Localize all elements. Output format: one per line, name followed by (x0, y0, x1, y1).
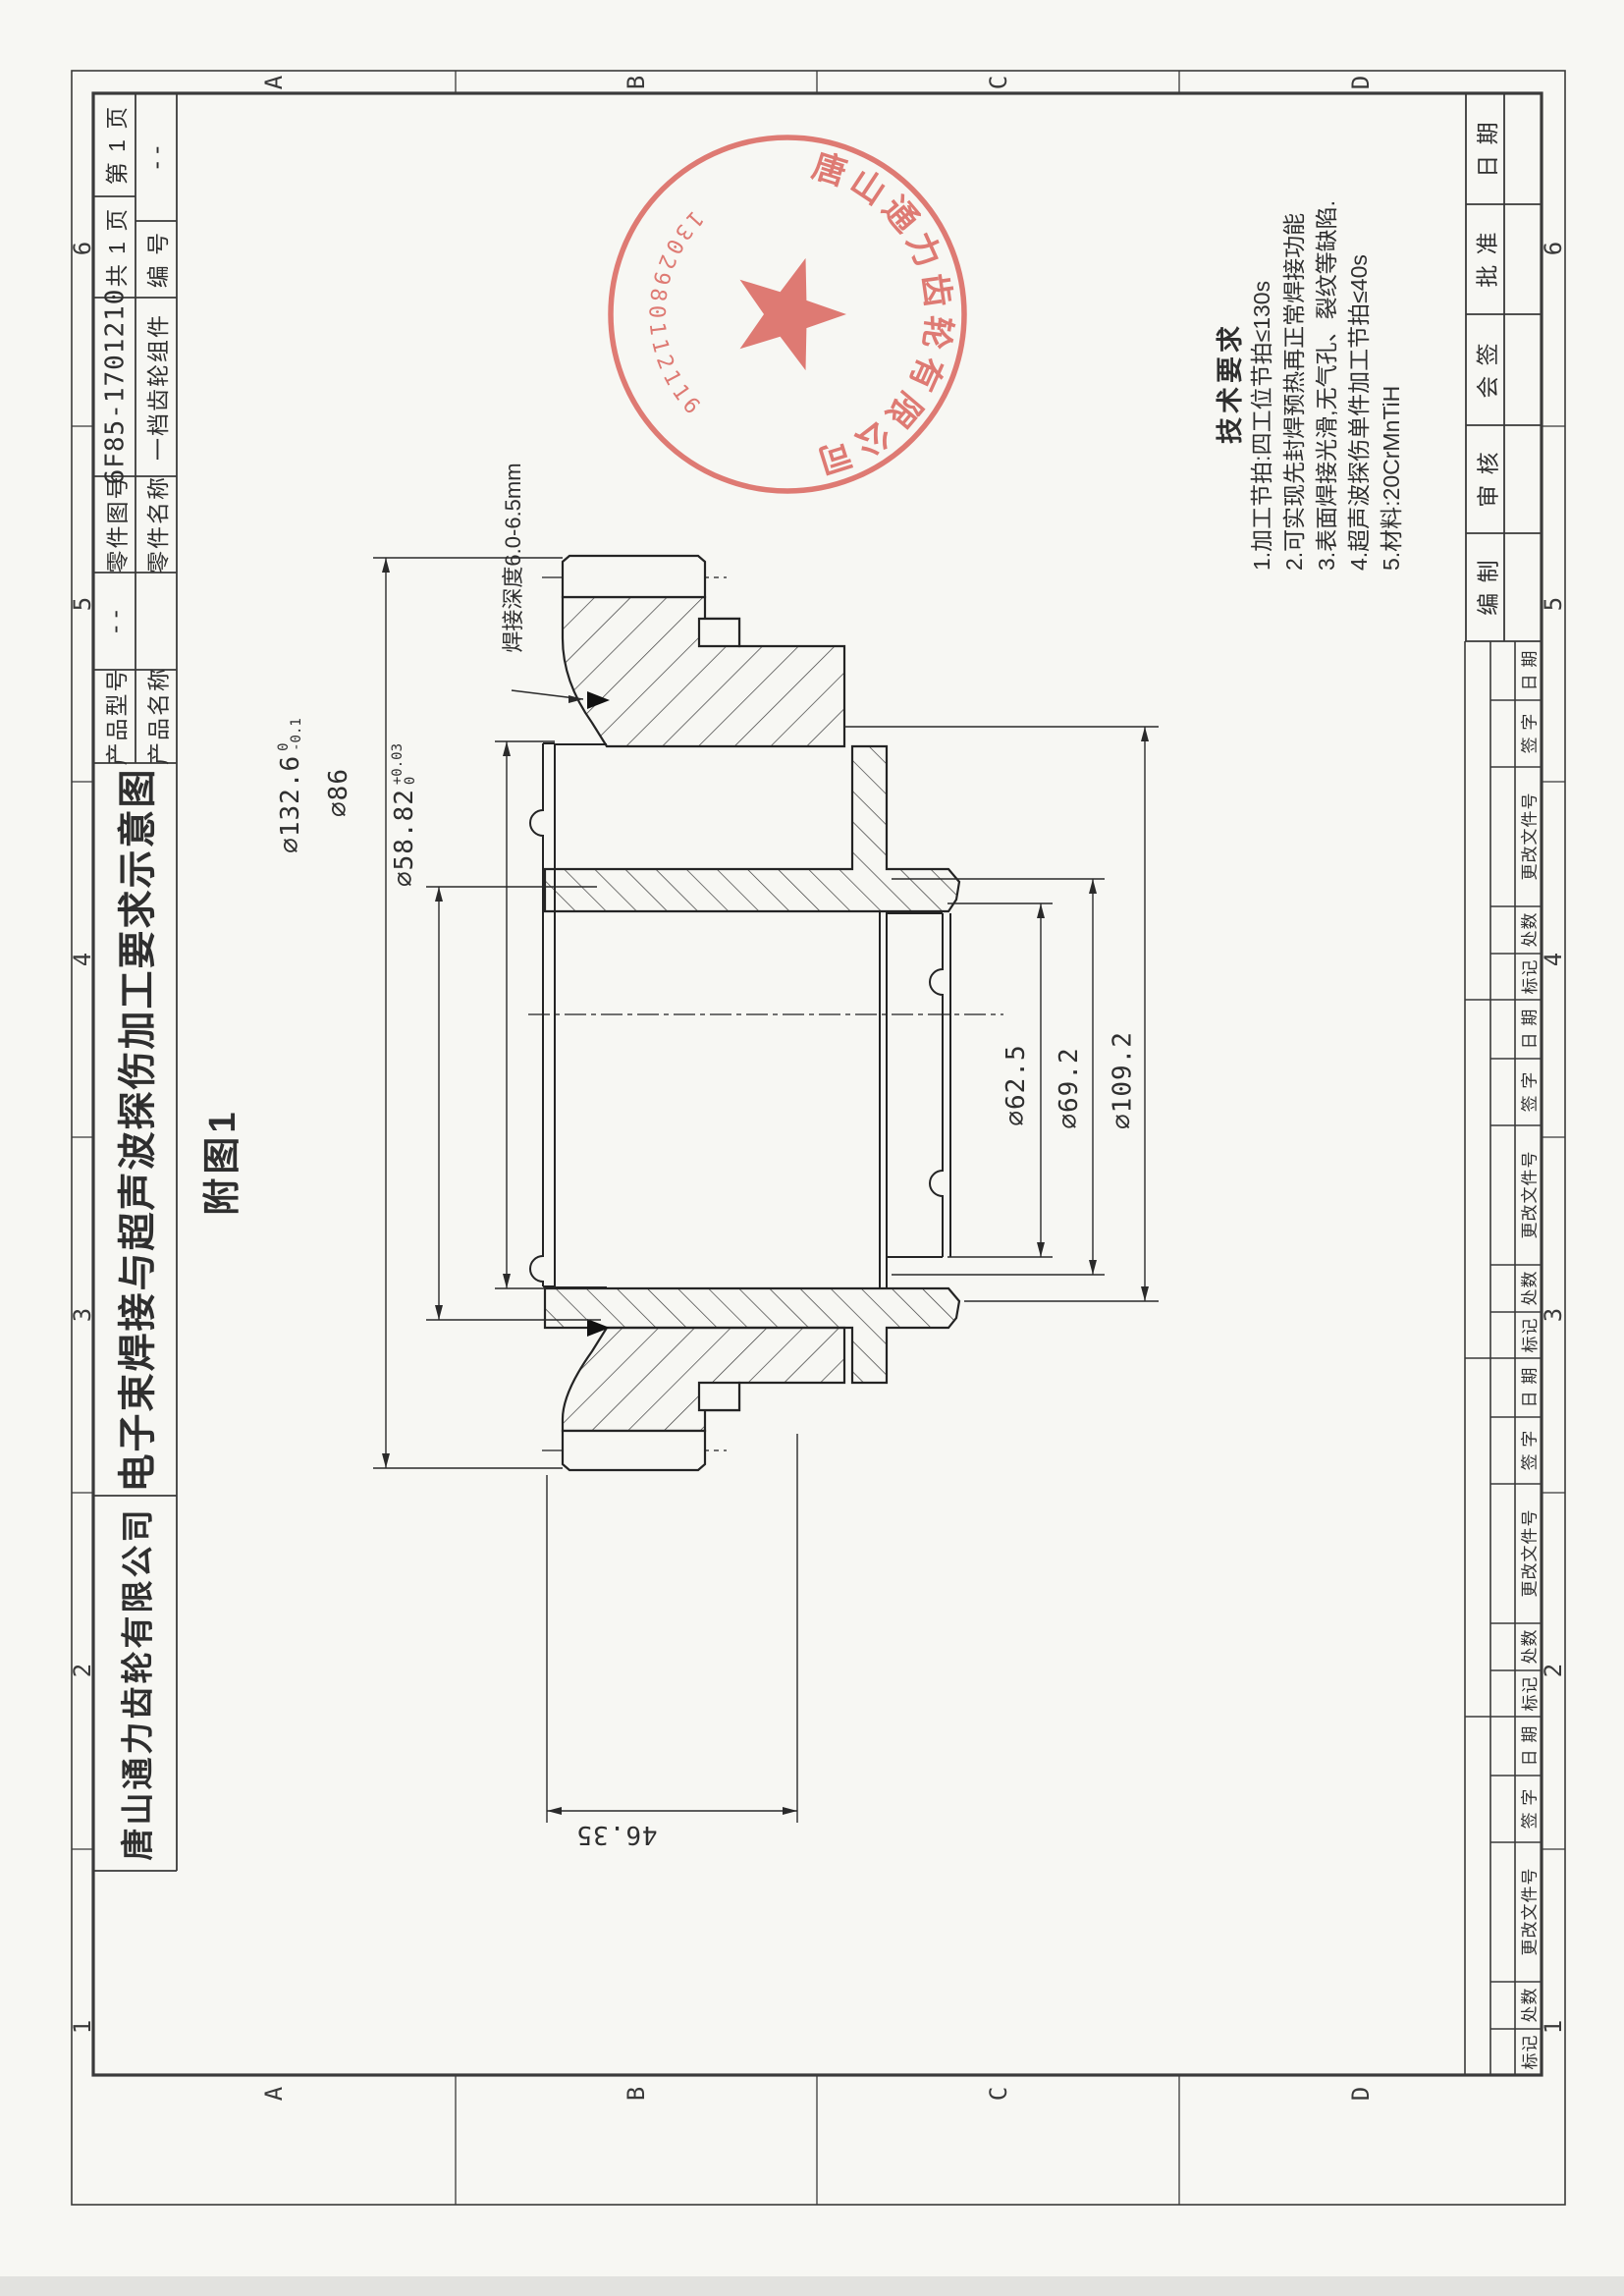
dim-od-132-tolerance: 0-0.1 (278, 718, 303, 751)
rev3-docno: 更改文件号 (1515, 1484, 1542, 1623)
zone-letter-top-c: C (984, 68, 1013, 97)
rev4-sign: 签 字 (1515, 1776, 1542, 1842)
tech-req-line5: 5.材料:20CrMnTiH (1375, 323, 1404, 571)
sign-approve-label: 批 准 (1466, 204, 1504, 314)
dim-4635: 46.35 (558, 1819, 676, 1850)
rev3-count: 处数 (1515, 1623, 1542, 1670)
stamp-star-icon (740, 258, 847, 370)
model-label: 产品型号 (93, 670, 135, 763)
dimension-lines (373, 558, 1159, 1823)
zone-number-right-2: 2 (1539, 1656, 1568, 1685)
dim-692: ∅69.2 (1054, 1034, 1085, 1142)
tech-req-line2: 2.可实现先封焊预热再正常焊接功能 (1277, 191, 1307, 571)
dim-od-132-value: ∅132.6 (276, 755, 305, 853)
tech-req-title: 技术要求 (1213, 314, 1242, 452)
zone-letter-top-d: D (1346, 68, 1376, 97)
rev4-count: 处数 (1515, 1982, 1542, 2029)
part-number-label: 零件图号 (94, 476, 136, 573)
zone-letter-bottom-d: D (1346, 2079, 1376, 2108)
rev4-mark: 标记 (1515, 2029, 1542, 2075)
model-value: -- (93, 573, 135, 670)
gear-hatched-sections (545, 556, 959, 1470)
zone-number-right-4: 4 (1539, 945, 1568, 974)
svg-text:1302980112116: 1302980112116 (644, 205, 708, 422)
serial-value: -- (135, 93, 177, 221)
part-name: 一档齿轮组件 (135, 298, 177, 476)
gear-section-view (373, 556, 1159, 1823)
rev1-mark: 标记 (1515, 954, 1542, 1000)
rev2-mark: 标记 (1515, 1312, 1542, 1358)
dim-86: ∅86 (323, 748, 354, 837)
sign-check-label: 审 核 (1467, 425, 1505, 533)
zone-number-right-1: 1 (1539, 2012, 1568, 2042)
stamp-number-arc: 1302980112116 (644, 205, 708, 422)
part-number: 6F85-1701210 (94, 298, 136, 476)
tech-req-line1: 1.加工节拍:四工位节拍≤130s (1245, 166, 1274, 571)
document-title: 电子束焊接与超声波探伤加工要求示意图 (93, 764, 177, 1497)
rev2-date: 日 期 (1515, 1000, 1542, 1059)
drawing-sheet: 唐山通力齿轮有限公司 1302980112116 A B C D A B C D… (0, 0, 1624, 2296)
pages-total: 共 1 页 (93, 196, 135, 298)
zone-number-right-5: 5 (1539, 589, 1568, 619)
sign-joint-label: 会 签 (1466, 314, 1504, 425)
zone-letter-top-b: B (622, 68, 651, 97)
dim-bore-5882-tolerance: +0.030 (392, 743, 417, 785)
rev2-docno: 更改文件号 (1515, 1125, 1542, 1265)
figure-label: 附图1 (195, 1073, 241, 1250)
company-name: 唐山通力齿轮有限公司 (93, 1497, 177, 1872)
zone-number-left-1: 1 (68, 2012, 97, 2042)
dim-od-132: ∅132.6 0-0.1 (275, 673, 306, 899)
zone-number-right-6: 6 (1539, 234, 1568, 263)
rev1-docno: 更改文件号 (1515, 767, 1542, 906)
dim-86-value: ∅86 (324, 768, 353, 817)
tech-req-line3: 3.表面焊接光滑,无气孔、裂纹等缺陷. (1310, 148, 1339, 571)
rev3-sign: 签 字 (1515, 1417, 1542, 1484)
page-number: 第 1 页 (93, 93, 135, 196)
product-name-label: 产品名称 (136, 670, 178, 763)
zone-number-right-3: 3 (1539, 1300, 1568, 1330)
rev4-docno: 更改文件号 (1515, 1842, 1542, 1982)
rev1-count: 处数 (1515, 906, 1542, 954)
zone-letter-bottom-c: C (984, 2079, 1013, 2108)
part-name-label: 零件名称 (135, 476, 177, 573)
rev2-sign: 签 字 (1515, 1059, 1542, 1125)
rev3-date: 日 期 (1515, 1358, 1542, 1417)
dim-bore-5882: ∅58.82 +0.030 (389, 712, 420, 918)
zone-letter-top-a: A (259, 68, 289, 97)
rev3-mark: 标记 (1515, 1670, 1542, 1717)
rev1-date: 日 期 (1515, 641, 1542, 700)
company-stamp: 唐山通力齿轮有限公司 1302980112116 (611, 137, 964, 491)
scan-page-edge (0, 2276, 1624, 2296)
zone-letter-bottom-b: B (622, 2079, 651, 2108)
zone-letter-bottom-a: A (259, 2079, 289, 2108)
rev4-date: 日 期 (1515, 1717, 1542, 1776)
rev2-count: 处数 (1515, 1265, 1542, 1312)
sign-compile-label: 编 制 (1467, 533, 1505, 641)
tech-req-line4: 4.超声波探伤单件加工节拍≤40s (1342, 170, 1372, 571)
weld-depth-note: 焊接深度6.0-6.5mm (496, 425, 527, 690)
dim-bore-5882-value: ∅58.82 (390, 789, 419, 887)
rev1-sign: 签 字 (1515, 700, 1542, 767)
dim-1092: ∅109.2 (1108, 1014, 1139, 1147)
serial-label: 编 号 (135, 221, 177, 298)
dim-625: ∅62.5 (1001, 1031, 1032, 1139)
sign-date-label: 日 期 (1466, 93, 1504, 204)
